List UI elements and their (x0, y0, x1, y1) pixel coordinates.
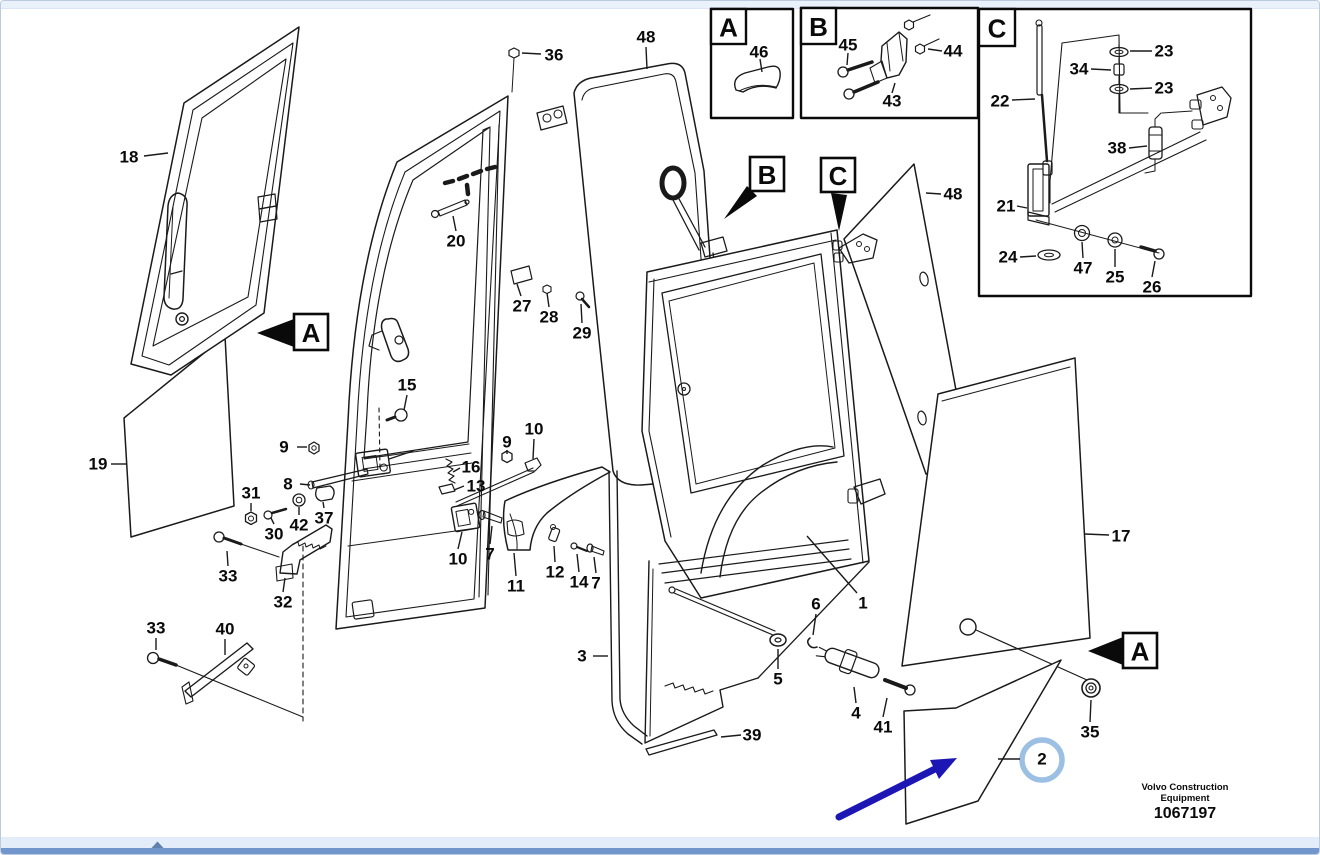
inset-c-content-shape (1042, 95, 1047, 161)
part-leader-6-32 (813, 614, 816, 635)
inset-b-content-shape (887, 33, 903, 71)
part-label-4-33: 4 (851, 704, 861, 723)
bolt-41 (885, 680, 906, 688)
latch-hardware-group-shape (312, 446, 316, 450)
part-label-10-19: 10 (449, 550, 468, 569)
part-label-38-44: 38 (1108, 139, 1127, 158)
grommet-35-shape (1089, 686, 1093, 690)
grommet-35-shape (1086, 683, 1096, 693)
inset-c-content-shape (1045, 253, 1054, 257)
window-frame-18 (131, 27, 299, 375)
part-leader-14-23 (577, 554, 579, 572)
damper-4-shape (839, 649, 858, 675)
handle-and-rail-group-shape (244, 664, 248, 668)
latch-hardware-group-shape (577, 547, 587, 551)
door-frame-1-shape (650, 569, 653, 736)
door-stop-assembly-shape (669, 587, 675, 593)
bracket-21 (1028, 164, 1049, 216)
part-leader-35-38 (1090, 700, 1091, 722)
damper-4 (814, 640, 882, 684)
part-label-37-14: 37 (315, 509, 334, 528)
door-frame-1 (642, 230, 885, 743)
bolt-45a (838, 67, 848, 77)
part-label-9-17: 9 (502, 433, 511, 452)
part-leader-33-25 (227, 551, 228, 566)
part-leader-39-30 (721, 735, 741, 737)
part-leader-4-33 (854, 687, 856, 703)
inset-c-content-shape (1192, 120, 1203, 129)
part-leader-18-0 (144, 153, 168, 156)
washer-42 (293, 494, 305, 506)
handle-and-rail-group-shape (241, 544, 279, 557)
part-label-7-20: 7 (485, 545, 494, 564)
part-leader-22-40 (1012, 99, 1035, 100)
bracket-37 (316, 486, 334, 501)
latch-hardware-group-shape (296, 497, 302, 503)
nut-9 (309, 442, 319, 454)
handle-and-rail-group-shape (159, 659, 176, 665)
inset-b-content-shape (848, 62, 872, 70)
ref-letter-B-1: B (758, 160, 777, 190)
part-leader-28-6 (547, 293, 549, 307)
nut-36 (509, 48, 519, 58)
inset-b-content-shape (924, 39, 939, 46)
door-glass-48-center-shape (543, 114, 551, 122)
part-label-46-50: 46 (750, 43, 769, 62)
step-strip-39 (646, 730, 717, 755)
clip-10 (525, 458, 541, 471)
part-leader-34-42 (1091, 69, 1111, 70)
part-label-11-21: 11 (507, 577, 525, 596)
rail-40 (185, 643, 253, 697)
part-leader-41-34 (883, 698, 887, 717)
part-leader-48-3 (646, 47, 647, 69)
part-leader-37-14 (323, 502, 324, 508)
part-label-25-48: 25 (1106, 268, 1125, 287)
part-label-26-49: 26 (1143, 278, 1162, 297)
inset-c-content-shape (1211, 96, 1216, 101)
part-label-19-1: 19 (89, 455, 108, 474)
part-leader-47-47 (1082, 242, 1083, 258)
part-leader-7-24 (594, 557, 596, 573)
part-leader-26-49 (1152, 261, 1155, 277)
part-label-36-2: 36 (545, 46, 564, 65)
part-label-31-11: 31 (242, 484, 261, 503)
rod-22 (1037, 25, 1042, 95)
part-label-10-18: 10 (525, 420, 544, 439)
part-leader-44-52 (928, 49, 942, 51)
bolt-33-lower (148, 653, 159, 664)
footer-title-block: Volvo Construction Equipment 1067197 (1142, 782, 1229, 822)
part-leader-27-5 (517, 284, 521, 296)
inset-c-content-shape (1033, 169, 1043, 211)
inset-c-content-shape (1218, 106, 1223, 111)
part-label-3-29: 3 (577, 647, 586, 666)
ref-letter-A-3: A (1131, 637, 1150, 667)
inset-letters-layer: ABC (711, 8, 1015, 46)
scrollbar-track[interactable] (1, 837, 1319, 848)
part-leader-23-43 (1130, 88, 1152, 89)
part-label-14-23: 14 (570, 573, 589, 592)
scrollbar-bar[interactable] (1, 848, 1319, 854)
latch-hardware-group-shape (510, 514, 517, 549)
handle-and-rail-group-shape (237, 658, 255, 676)
bolt-45b (844, 89, 854, 99)
part-label-43-53: 43 (883, 92, 902, 111)
part-label-2-39: 2 (1037, 750, 1046, 769)
nut-44b (916, 44, 925, 54)
part-leader-38-44 (1129, 146, 1147, 148)
inset-letter-B: B (809, 12, 828, 42)
document-number: 1067197 (1154, 805, 1216, 822)
part-leader-12-22 (554, 546, 555, 562)
inset-c-content-shape (1115, 87, 1123, 91)
part-leader-30-12 (271, 518, 274, 524)
part-label-45-51: 45 (839, 36, 858, 55)
part-label-28-6: 28 (540, 308, 559, 327)
part-leader-36-2 (522, 53, 541, 54)
inset-c-content-shape (1145, 113, 1161, 173)
part-label-9-9: 9 (279, 438, 288, 457)
door-stop-assembly-shape (905, 685, 915, 695)
part-label-8-10: 8 (283, 475, 292, 494)
inset-letter-A: A (719, 13, 738, 43)
washer-47 (1075, 226, 1090, 241)
grommet-35 (1082, 679, 1100, 697)
part-label-48-36: 48 (944, 185, 963, 204)
part-label-35-38: 35 (1081, 723, 1100, 742)
inset-c-content-shape (1112, 237, 1118, 243)
latch-hardware-group-shape (249, 516, 254, 521)
inset-a-content (735, 66, 780, 92)
ref-arrow-A-3 (1088, 637, 1123, 665)
door-frame-center-shape (582, 299, 589, 307)
diagram-canvas: ABCA 18193648202728291598313042371613910… (1, 1, 1319, 854)
part-label-44-52: 44 (944, 42, 963, 61)
part-label-41-34: 41 (874, 718, 893, 737)
door-glass-48-center-shape (537, 106, 567, 130)
bolt-33-upper (214, 532, 224, 542)
latch-hardware-group-shape (272, 509, 286, 513)
bolt-26 (1141, 247, 1155, 251)
inset-c-content-shape (1154, 249, 1164, 259)
sill-serration (665, 683, 713, 694)
door-glass-48-center-shape (554, 110, 562, 118)
nut-31 (246, 512, 257, 525)
handle-and-rail-group-shape (176, 665, 303, 717)
brand-line2: Equipment (1160, 793, 1210, 804)
part-leader-8-10 (300, 484, 310, 485)
run-channel-3-shape (609, 471, 642, 744)
part-leader-17-37 (1085, 534, 1109, 535)
run-channel-3-shape (617, 471, 647, 736)
window-frame-18-shape (131, 27, 299, 375)
inset-b-content-shape (913, 15, 930, 22)
ref-letter-C-2: C (829, 161, 848, 191)
diagram-art (124, 8, 1251, 824)
part-label-21-45: 21 (997, 197, 1016, 216)
part-label-39-30: 39 (743, 726, 762, 745)
part-label-48-3: 48 (637, 28, 656, 47)
part-leader-11-21 (514, 553, 516, 576)
door-frame-center-shape (467, 185, 468, 194)
part-leader-45-51 (847, 53, 848, 65)
ref-arrow-A-0 (257, 319, 294, 347)
step-strip-39-shape (646, 730, 717, 755)
bolt-30 (264, 511, 272, 519)
parts-diagram-page: ABCA 18193648202728291598313042371613910… (0, 0, 1320, 855)
part-label-5-31: 5 (773, 670, 782, 689)
inset-c-content-shape (1149, 135, 1162, 151)
inset-b-content (838, 15, 939, 99)
part-label-33-25: 33 (219, 567, 238, 586)
part-label-27-5: 27 (513, 297, 532, 316)
part-label-42-13: 42 (290, 516, 309, 535)
part-label-1-35: 1 (858, 594, 867, 613)
door-frame-center-shape (512, 58, 514, 92)
part-leader-48-36 (926, 193, 941, 194)
part-label-6-32: 6 (811, 595, 820, 614)
clip-6 (808, 638, 817, 648)
part-label-24-46: 24 (999, 248, 1018, 267)
part-label-22-40: 22 (991, 92, 1010, 111)
part-label-32-26: 32 (274, 593, 293, 612)
part-leader-29-7 (581, 304, 582, 323)
part-leader-7-20 (490, 526, 492, 544)
part-label-15-8: 15 (398, 376, 417, 395)
handle-and-rail-group-shape (293, 542, 326, 549)
washer-23b (1110, 85, 1128, 94)
part-label-34-42: 34 (1070, 60, 1089, 79)
nut-28 (543, 285, 551, 294)
part-label-23-43: 23 (1155, 79, 1174, 98)
screw-14 (571, 543, 577, 549)
part-label-40-28: 40 (216, 620, 235, 639)
brand-line1: Volvo Construction (1142, 782, 1229, 793)
part-label-23-41: 23 (1155, 42, 1174, 61)
shim-24 (1038, 250, 1060, 260)
part-label-17-37: 17 (1112, 527, 1131, 546)
part-label-13-16: 13 (467, 477, 486, 496)
part-label-12-22: 12 (546, 563, 565, 582)
inset-b-content-shape (854, 82, 878, 92)
part-label-47-47: 47 (1074, 259, 1093, 278)
door-frame-center (303, 48, 589, 721)
handle-and-rail-group (148, 525, 333, 717)
pad-46 (735, 66, 780, 92)
nut-44a (905, 20, 914, 30)
part-label-29-7: 29 (573, 324, 592, 343)
inset-letter-C: C (988, 14, 1007, 44)
inset-c-content (1028, 20, 1231, 260)
part-leader-24-46 (1020, 256, 1036, 257)
viewer-top-strip (1, 1, 1319, 8)
grommet-35-shape (1082, 679, 1100, 697)
part-label-7-24: 7 (591, 574, 600, 593)
ref-arrow-C-2 (831, 193, 847, 231)
part-label-18-0: 18 (120, 148, 139, 167)
part-label-20-4: 20 (447, 232, 466, 251)
hinge-plate (1197, 87, 1231, 125)
ref-letter-A-0: A (302, 318, 321, 348)
part-label-33-27: 33 (147, 619, 166, 638)
part-label-30-12: 30 (265, 525, 284, 544)
run-channel-3 (609, 471, 647, 744)
handle-and-rail-group-shape (224, 538, 241, 544)
part-leader-10-18 (533, 439, 534, 459)
part-leader-21-45 (1017, 206, 1027, 208)
bracket-27 (511, 266, 532, 284)
part-label-16-15: 16 (462, 458, 481, 477)
